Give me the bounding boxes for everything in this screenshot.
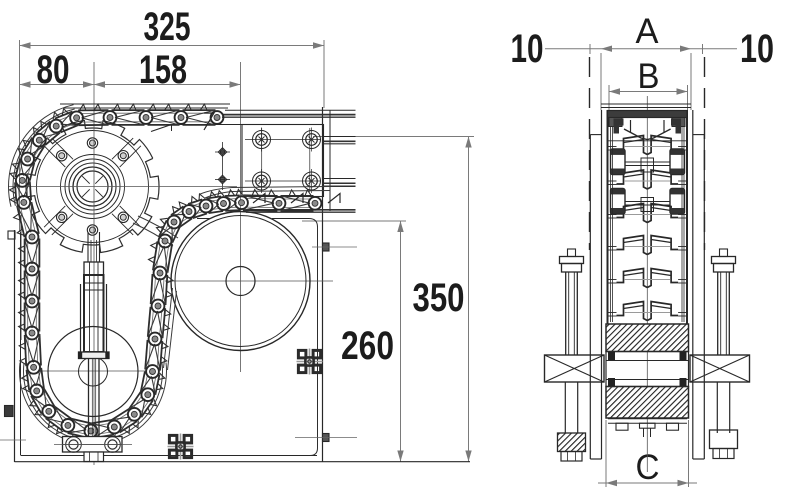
svg-text:10: 10 [740, 27, 774, 71]
svg-text:A: A [636, 12, 660, 51]
svg-text:350: 350 [413, 276, 465, 320]
svg-text:158: 158 [139, 48, 187, 92]
svg-text:10: 10 [511, 27, 544, 71]
svg-text:325: 325 [144, 5, 191, 49]
svg-text:80: 80 [37, 48, 70, 92]
svg-text:260: 260 [341, 324, 394, 368]
svg-text:B: B [638, 57, 660, 96]
